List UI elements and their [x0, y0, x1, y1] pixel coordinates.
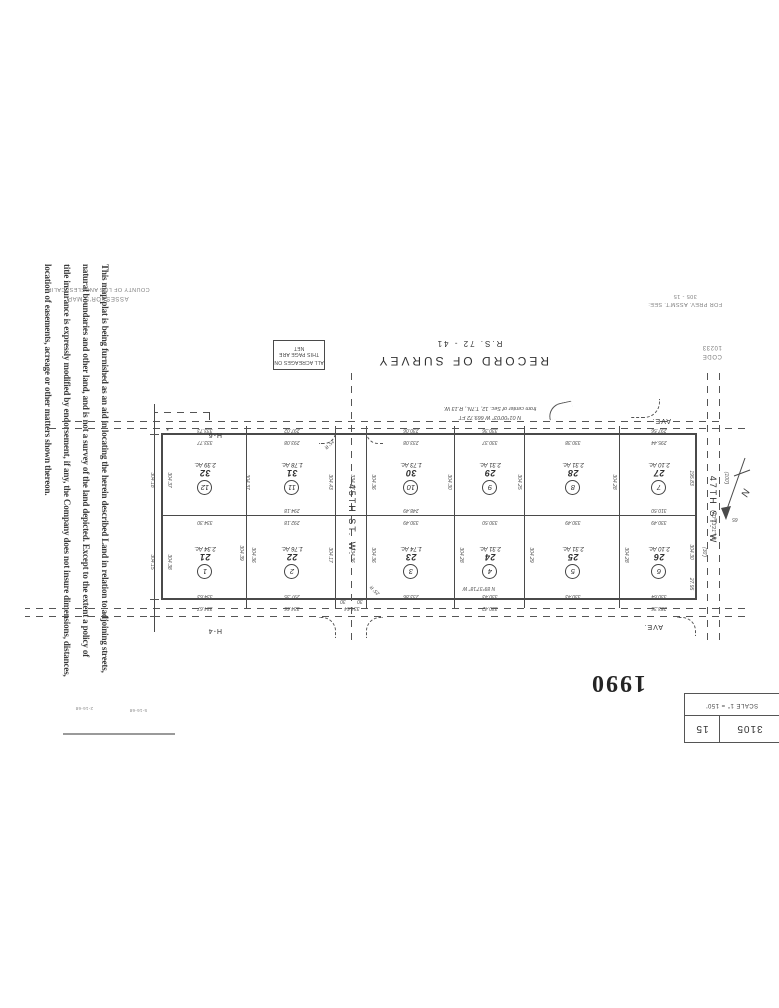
- dimension-label: (30'): [701, 547, 707, 557]
- scanned-survey-page: This map/plat is being furnished as an a…: [0, 0, 779, 1008]
- dimension-label: 304.37: [244, 474, 250, 489]
- dimension-label: 30: [357, 598, 363, 604]
- dimension-label: N 89°37'18" W: [463, 585, 496, 591]
- dimension-label: 304.37: [166, 472, 172, 487]
- dimension-label: 65: [732, 516, 738, 522]
- dimension-label: 27.95: [688, 578, 694, 591]
- dimension-label: 304.36: [370, 547, 376, 562]
- dimension-label: 304.25: [516, 474, 522, 489]
- dimension-label: 304.28: [611, 474, 617, 489]
- dimension-label: 304.43: [327, 474, 333, 489]
- map-sheet-rotated: 3105 15 SCALE 1" = 150' 1990 5-16-68 2-1…: [0, 250, 779, 760]
- dimension-label: 330.42: [482, 605, 497, 611]
- dimension-label: (100'): [723, 472, 729, 485]
- dimension-label: 283.36: [651, 605, 666, 611]
- dimension-label: 304.38: [166, 554, 172, 569]
- dimension-label: 230.06: [403, 427, 418, 433]
- dimension-label: 304.36: [370, 474, 376, 489]
- dimension-label: 330.49: [565, 519, 580, 525]
- dimension-label: 293.08: [284, 439, 299, 445]
- dimension-label: 333.77: [197, 439, 212, 445]
- dimension-label: 310.50: [651, 507, 666, 513]
- dimension-label: 25' R: [369, 584, 381, 596]
- dimension-label: 297.56: [651, 427, 666, 433]
- dimension-label: 334.17: [349, 474, 355, 489]
- dimension-label: 295.44: [651, 439, 666, 445]
- dimension-label: 330.36: [482, 427, 497, 433]
- dimension-label: 330.43: [565, 593, 580, 599]
- dimension-label: 195.83: [688, 470, 694, 485]
- dimension-label: 304.30: [688, 544, 694, 559]
- dimension-label: 330.43: [482, 593, 497, 599]
- dimension-label: 334.63: [197, 593, 212, 599]
- dimension-label: 304.30: [446, 474, 452, 489]
- dimension-label: 304.18: [149, 472, 155, 487]
- dimension-label: 330.64: [651, 593, 666, 599]
- plat-drawing: * N 45TH ST. W. 47TH ST. W AVE. H-4 AVE.: [0, 250, 779, 760]
- dimension-label: 333.73: [197, 427, 212, 433]
- dimension-label: 233.86: [403, 593, 418, 599]
- dimension-label: 334.67: [197, 605, 212, 611]
- dimension-label: 294.18: [284, 507, 299, 513]
- dimension-label: 330.49: [651, 519, 666, 525]
- dimension-label: 304.28: [623, 547, 629, 562]
- dimension-label: 330.38: [565, 439, 580, 445]
- dimension-label: 304.17: [327, 547, 333, 562]
- dimension-label: N 0°13'21" W: [710, 510, 716, 540]
- dimension-label: 330.49: [403, 519, 418, 525]
- dimension-label: 304.28: [458, 547, 464, 562]
- dimension-label: 30: [340, 598, 346, 604]
- dimension-label: 330.50: [482, 519, 497, 525]
- dimension-label: 304.15: [149, 554, 155, 569]
- dimension-label: 334.30: [197, 519, 212, 525]
- dimension-label: 304.39: [238, 545, 244, 560]
- dimension-label: 334.66: [284, 605, 299, 611]
- dimension-label: 25' R: [323, 438, 335, 450]
- dimension-label: 248.49: [403, 507, 418, 513]
- dimension-label: 330.37: [482, 439, 497, 445]
- dimension-label: 233.08: [403, 439, 418, 445]
- dimension-label: 297.35: [284, 593, 299, 599]
- dimension-label: 304.36: [250, 547, 256, 562]
- dimension-label: 334.36: [349, 547, 355, 562]
- dimension-label: 297.02: [284, 427, 299, 433]
- dimension-label: 292.18: [284, 519, 299, 525]
- dimension-label: 304.29: [528, 547, 534, 562]
- dimension-label: 334.64: [344, 605, 359, 611]
